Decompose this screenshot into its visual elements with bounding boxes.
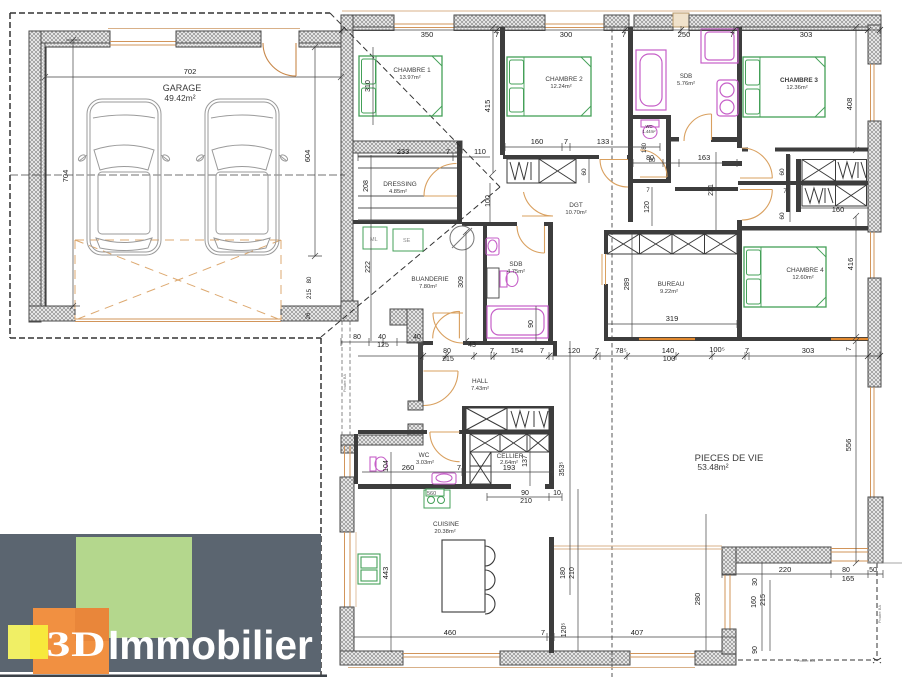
- svg-text:250: 250: [678, 30, 691, 39]
- svg-text:10: 10: [553, 490, 561, 497]
- svg-text:80: 80: [649, 158, 656, 164]
- svg-text:GARAGE: GARAGE: [163, 83, 202, 93]
- svg-text:556: 556: [844, 439, 853, 452]
- svg-text:BUANDERIE: BUANDERIE: [411, 276, 448, 283]
- svg-text:222: 222: [365, 261, 372, 273]
- svg-text:415: 415: [483, 100, 492, 113]
- svg-text:7: 7: [495, 30, 499, 39]
- svg-text:160: 160: [832, 205, 845, 214]
- svg-text:310: 310: [365, 80, 372, 92]
- svg-text:80: 80: [307, 276, 313, 283]
- svg-text:289: 289: [622, 278, 631, 291]
- svg-text:7: 7: [457, 463, 461, 472]
- svg-text:154: 154: [511, 346, 524, 355]
- svg-text:7: 7: [541, 628, 545, 637]
- svg-text:Immobilier: Immobilier: [108, 622, 313, 668]
- svg-text:210: 210: [569, 567, 576, 579]
- svg-text:300: 300: [560, 30, 573, 39]
- svg-text:100: 100: [485, 195, 492, 207]
- svg-text:7: 7: [595, 346, 599, 355]
- svg-text:702: 702: [184, 67, 197, 76]
- svg-text:78⁵: 78⁵: [615, 346, 626, 355]
- svg-text:DGT: DGT: [569, 202, 583, 209]
- svg-text:40: 40: [413, 334, 421, 341]
- svg-text:133: 133: [597, 137, 610, 146]
- svg-text:408: 408: [845, 98, 854, 111]
- svg-text:104: 104: [383, 460, 390, 472]
- svg-text:560: 560: [427, 491, 436, 497]
- svg-text:303: 303: [802, 346, 815, 355]
- svg-text:1.44m²: 1.44m²: [642, 129, 656, 134]
- svg-text:Poutre BA: Poutre BA: [877, 605, 882, 624]
- svg-text:210: 210: [520, 498, 532, 505]
- svg-text:SDB: SDB: [509, 261, 522, 268]
- svg-text:3D: 3D: [47, 625, 107, 665]
- svg-text:120⁵: 120⁵: [561, 623, 568, 638]
- svg-text:CUISINE: CUISINE: [433, 521, 459, 528]
- svg-text:80: 80: [842, 567, 850, 574]
- svg-text:5.76m²: 5.76m²: [677, 81, 695, 87]
- svg-text:49.42m²: 49.42m²: [164, 93, 195, 103]
- svg-text:90: 90: [528, 320, 535, 328]
- svg-text:7: 7: [730, 30, 734, 39]
- svg-text:CHAMBRE 3: CHAMBRE 3: [780, 77, 818, 84]
- svg-text:BUREAU: BUREAU: [658, 281, 685, 288]
- svg-text:26: 26: [306, 312, 312, 319]
- svg-text:CHAMBRE 1: CHAMBRE 1: [393, 67, 431, 74]
- svg-text:416: 416: [846, 258, 855, 271]
- svg-text:Poutre BA: Poutre BA: [342, 374, 347, 393]
- svg-text:7: 7: [540, 346, 544, 355]
- svg-text:215: 215: [307, 288, 313, 299]
- svg-text:DRESSING: DRESSING: [383, 181, 416, 188]
- svg-text:180: 180: [560, 567, 567, 579]
- svg-text:120: 120: [568, 346, 581, 355]
- svg-text:7: 7: [745, 346, 749, 355]
- svg-text:7: 7: [622, 30, 626, 39]
- svg-text:704: 704: [61, 170, 70, 183]
- svg-text:3.03m²: 3.03m²: [416, 460, 434, 466]
- svg-text:7: 7: [564, 137, 568, 146]
- svg-text:2.64m²: 2.64m²: [500, 460, 518, 466]
- svg-text:7.43m²: 7.43m²: [471, 386, 489, 392]
- svg-text:60: 60: [779, 168, 786, 176]
- svg-text:WC: WC: [419, 452, 430, 459]
- svg-text:90: 90: [521, 490, 529, 497]
- svg-text:7: 7: [846, 347, 853, 351]
- svg-text:30: 30: [752, 578, 759, 586]
- svg-text:80: 80: [443, 348, 451, 355]
- svg-text:7.80m²: 7.80m²: [419, 284, 437, 290]
- svg-text:215: 215: [442, 356, 454, 363]
- svg-text:60: 60: [779, 212, 786, 220]
- svg-text:350: 350: [421, 30, 434, 39]
- svg-text:160: 160: [751, 596, 758, 608]
- svg-text:220: 220: [779, 565, 792, 574]
- svg-text:7: 7: [490, 346, 494, 355]
- svg-text:SE: SE: [403, 238, 411, 244]
- svg-text:443: 443: [381, 567, 390, 580]
- svg-text:110: 110: [474, 147, 486, 156]
- svg-text:303: 303: [800, 30, 813, 39]
- svg-text:180: 180: [642, 142, 648, 153]
- svg-text:13.97m²: 13.97m²: [399, 75, 420, 81]
- svg-text:309: 309: [458, 276, 465, 288]
- svg-text:319: 319: [666, 314, 679, 323]
- svg-text:7: 7: [446, 147, 450, 156]
- svg-text:12.60m²: 12.60m²: [792, 275, 813, 281]
- svg-text:604: 604: [303, 150, 312, 163]
- svg-text:20.38m²: 20.38m²: [434, 529, 455, 535]
- svg-text:460: 460: [444, 628, 457, 637]
- svg-text:260: 260: [402, 463, 415, 472]
- svg-text:9.22m²: 9.22m²: [660, 289, 678, 295]
- svg-text:215: 215: [760, 594, 767, 606]
- svg-text:60: 60: [581, 168, 588, 176]
- svg-text:12.24m²: 12.24m²: [550, 84, 571, 90]
- svg-text:50: 50: [869, 567, 877, 574]
- svg-text:4.85m²: 4.85m²: [389, 189, 407, 195]
- svg-text:120: 120: [644, 201, 651, 213]
- svg-text:353⁵: 353⁵: [559, 462, 566, 477]
- svg-text:233: 233: [397, 147, 410, 156]
- svg-text:CELLIER: CELLIER: [497, 453, 524, 460]
- svg-text:100⁵: 100⁵: [709, 345, 725, 354]
- svg-text:12.36m²: 12.36m²: [786, 85, 807, 91]
- svg-text:231: 231: [708, 184, 715, 196]
- svg-text:53.48m²: 53.48m²: [697, 462, 728, 472]
- svg-text:43: 43: [468, 342, 476, 349]
- svg-text:CHAMBRE 2: CHAMBRE 2: [545, 76, 583, 83]
- svg-text:160: 160: [531, 137, 544, 146]
- svg-text:125: 125: [377, 342, 389, 349]
- svg-text:10.70m²: 10.70m²: [565, 210, 586, 216]
- svg-text:280: 280: [693, 593, 702, 606]
- svg-text:165: 165: [842, 574, 855, 583]
- svg-text:40: 40: [378, 334, 386, 341]
- svg-text:80: 80: [353, 334, 361, 341]
- svg-text:407: 407: [631, 628, 644, 637]
- svg-text:208: 208: [363, 180, 370, 192]
- svg-text:100: 100: [663, 354, 676, 363]
- svg-text:CHAMBRE 4: CHAMBRE 4: [786, 267, 824, 274]
- svg-text:163: 163: [698, 153, 711, 162]
- svg-text:HALL: HALL: [472, 378, 488, 385]
- svg-text:SDB: SDB: [680, 74, 692, 80]
- svg-text:Poutre BA: Poutre BA: [797, 658, 816, 663]
- svg-text:4.75m²: 4.75m²: [507, 269, 525, 275]
- svg-text:90: 90: [752, 646, 759, 654]
